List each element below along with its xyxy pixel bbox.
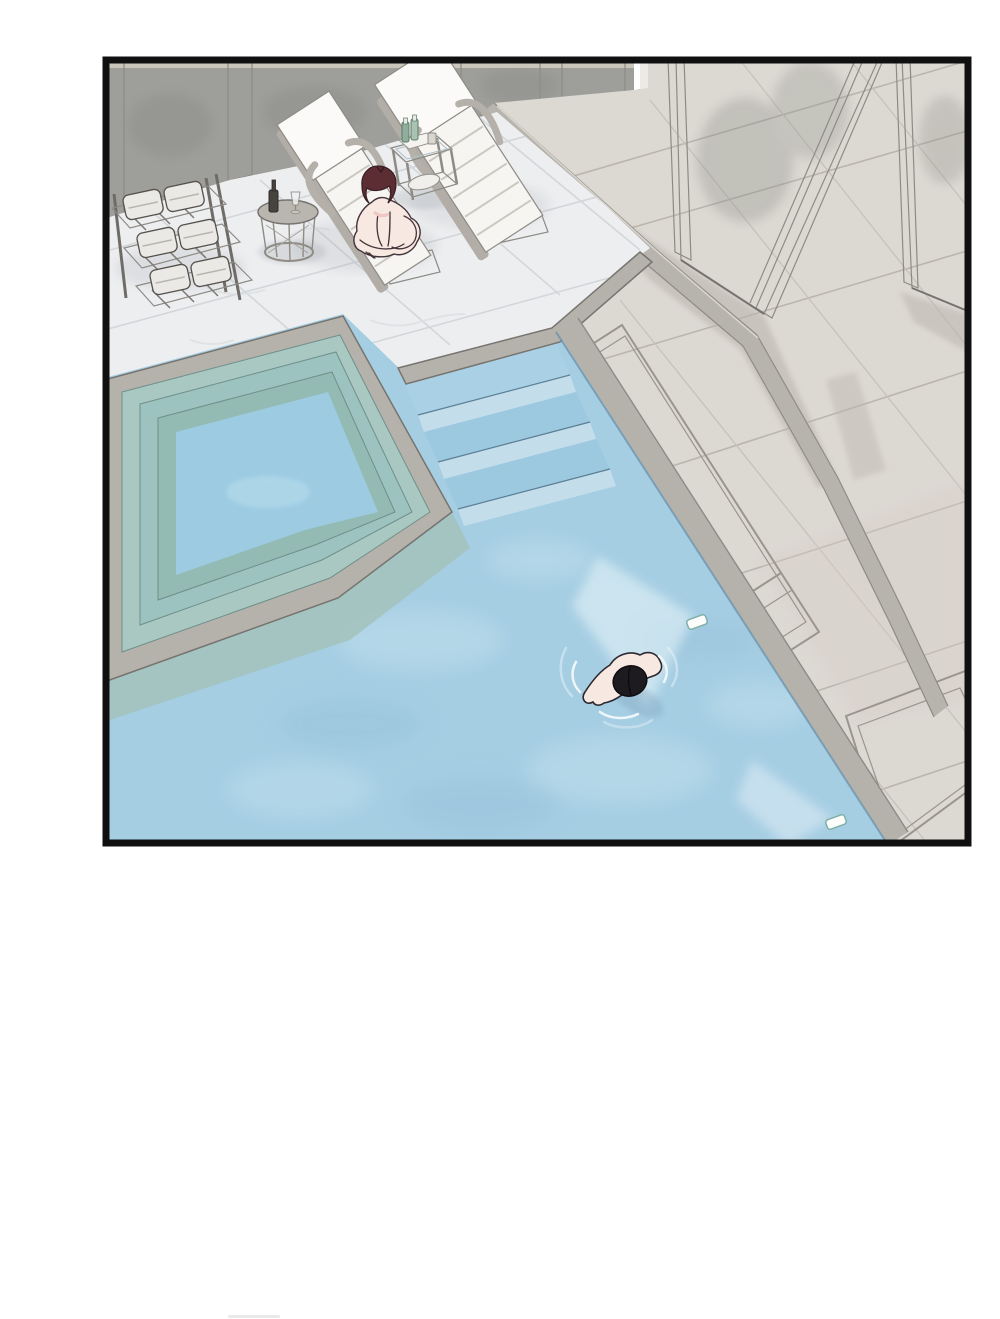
green-bottle [402,122,409,142]
cup [428,133,436,144]
table-top [258,200,318,224]
wine-glass [291,192,300,214]
webtoon-page [0,0,1000,1319]
green-bottle [411,119,418,140]
pool-scene-panel [0,0,1000,1319]
next-panel-hint [228,1315,280,1318]
